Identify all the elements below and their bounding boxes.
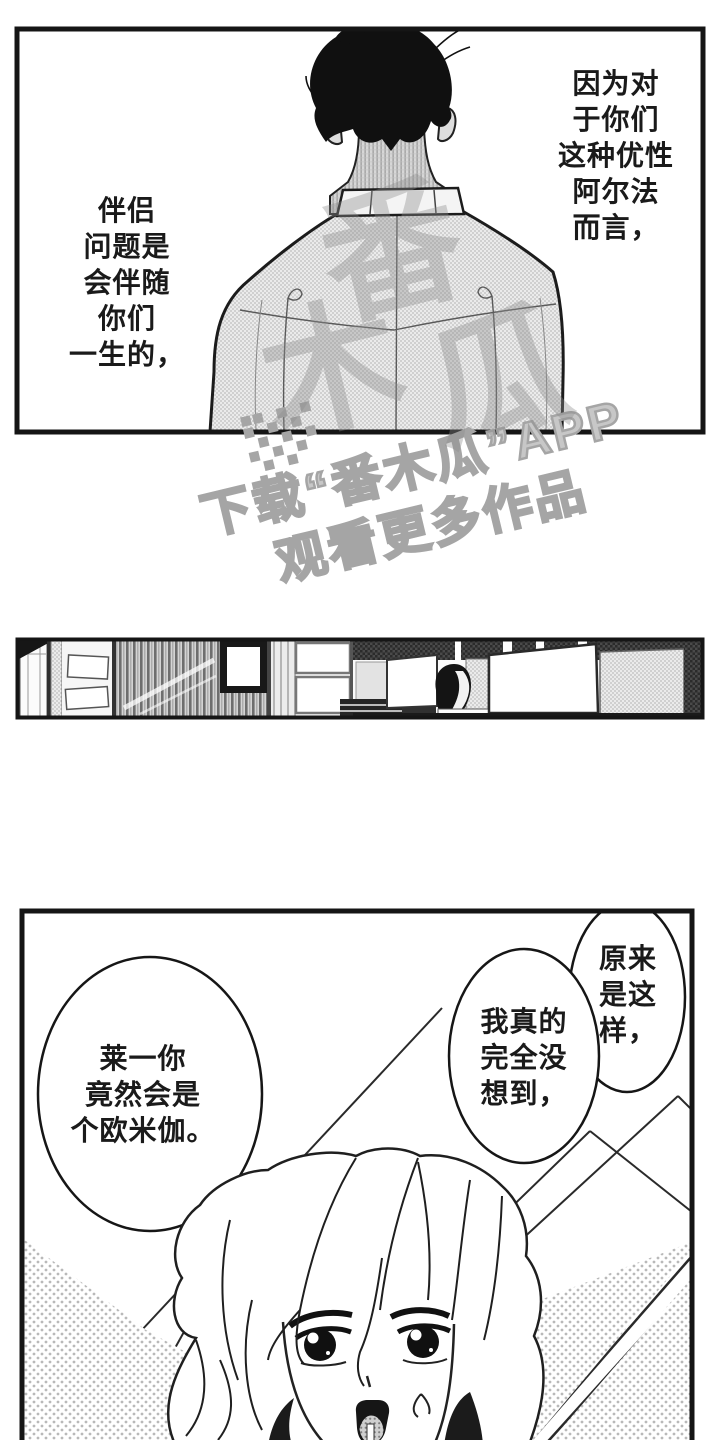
speech-text-left: 莱一你 竟然会是 个欧米伽。 bbox=[52, 1041, 234, 1149]
narration-line: 而言， bbox=[528, 210, 704, 246]
cubicle-partition bbox=[387, 655, 437, 708]
iris-right bbox=[407, 1326, 439, 1358]
narration-line: 因为对 bbox=[528, 66, 704, 102]
narration-line: 一生的， bbox=[40, 337, 214, 373]
narration-line: 于你们 bbox=[528, 102, 704, 138]
speech-line: 完全没 bbox=[434, 1040, 614, 1076]
pinned-sheet bbox=[67, 655, 108, 679]
manga-page: 伴侣 问题是 会伴随 你们 一生的， 因为对 于你们 这种优性 阿尔法 而言， … bbox=[0, 0, 720, 1440]
narration-left: 伴侣 问题是 会伴随 你们 一生的， bbox=[40, 193, 214, 373]
narration-line: 你们 bbox=[40, 301, 214, 337]
cubicle-partition bbox=[489, 644, 598, 713]
speech-text-middle: 我真的 完全没 想到， bbox=[434, 1004, 614, 1112]
narration-line: 阿尔法 bbox=[528, 174, 704, 210]
speech-line: 个欧米伽。 bbox=[52, 1113, 234, 1149]
stick-in-mouth bbox=[367, 1424, 374, 1440]
panel-middle bbox=[18, 640, 703, 718]
speech-line: 想到， bbox=[434, 1076, 614, 1112]
surprised-character bbox=[168, 1149, 543, 1440]
speech-line: 我真的 bbox=[434, 1004, 614, 1040]
speech-line: 原来 bbox=[546, 941, 710, 977]
narration-line: 会伴随 bbox=[40, 265, 214, 301]
speech-line: 莱一你 bbox=[52, 1041, 234, 1077]
narration-line: 这种优性 bbox=[528, 138, 704, 174]
narration-line: 问题是 bbox=[40, 229, 214, 265]
speech-line: 竟然会是 bbox=[52, 1077, 234, 1113]
pinned-sheet bbox=[65, 687, 108, 710]
cubicle-partition bbox=[600, 649, 684, 715]
collar bbox=[337, 188, 464, 216]
narration-right: 因为对 于你们 这种优性 阿尔法 而言， bbox=[528, 66, 704, 246]
narration-line: 伴侣 bbox=[40, 193, 214, 229]
whiteboard bbox=[296, 643, 350, 673]
iris-left bbox=[304, 1329, 336, 1361]
